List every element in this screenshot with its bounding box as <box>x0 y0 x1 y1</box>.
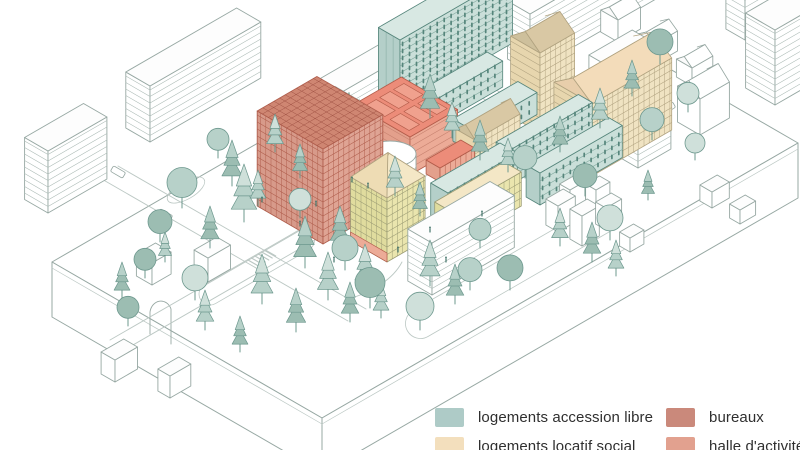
legend-swatch-bureaux <box>666 408 695 427</box>
legend-item-locatif-social: logements locatif social <box>435 437 635 450</box>
legend-item-halle-activite: halle d'activité <box>666 437 800 450</box>
legend-swatch-halle-activite <box>666 437 695 450</box>
masterplan-illustration <box>0 0 800 450</box>
legend-swatch-locatif-social <box>435 437 464 450</box>
masterplan-page: logements accession libre logements loca… <box>0 0 800 450</box>
legend-swatch-accession-libre <box>435 408 464 427</box>
legend-item-accession-libre: logements accession libre <box>435 408 653 427</box>
legend-label: logements locatif social <box>478 438 635 450</box>
legend-item-bureaux: bureaux <box>666 408 764 427</box>
legend-label: bureaux <box>709 409 764 426</box>
legend-label: halle d'activité <box>709 438 800 450</box>
legend-label: logements accession libre <box>478 409 653 426</box>
